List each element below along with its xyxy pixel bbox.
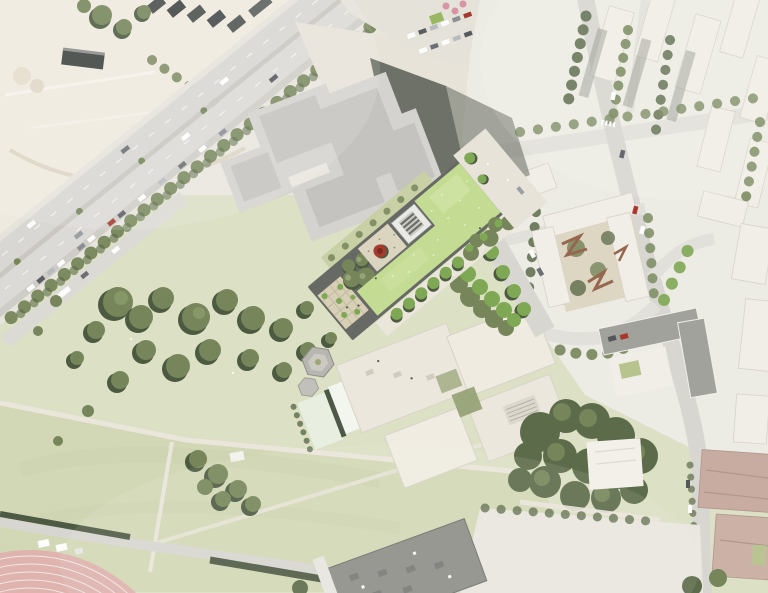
site-plan-canvas — [0, 0, 768, 593]
aerial-site-plan — [0, 0, 768, 593]
white-court — [586, 438, 643, 490]
